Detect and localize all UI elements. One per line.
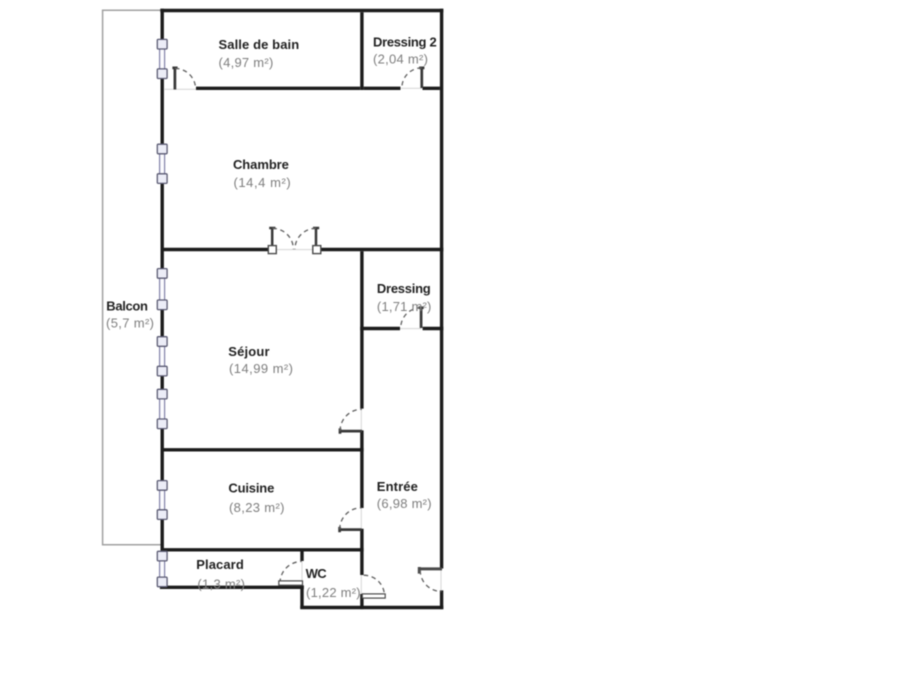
svg-text:WC: WC (306, 566, 328, 581)
svg-text:(1,22 m²): (1,22 m²) (306, 585, 361, 600)
svg-text:Chambre: Chambre (233, 157, 289, 172)
svg-text:Cuisine: Cuisine (228, 481, 274, 496)
svg-text:(5,7 m²): (5,7 m²) (106, 316, 154, 331)
svg-text:Séjour: Séjour (228, 344, 269, 359)
svg-text:(1,3 m²): (1,3 m²) (197, 576, 245, 591)
svg-text:Entrée: Entrée (377, 479, 418, 494)
svg-text:(2,04 m²): (2,04 m²) (373, 52, 428, 67)
svg-text:Dressing: Dressing (377, 281, 431, 296)
svg-text:Placard: Placard (196, 557, 244, 572)
svg-text:(14,99 m²): (14,99 m²) (229, 361, 293, 376)
svg-text:(14,4 m²): (14,4 m²) (234, 175, 291, 190)
svg-text:(1,71 m²): (1,71 m²) (377, 299, 432, 314)
svg-text:Salle de bain: Salle de bain (219, 37, 300, 52)
svg-text:(6,98 m²): (6,98 m²) (377, 496, 432, 511)
svg-text:(4,97 m²): (4,97 m²) (219, 55, 274, 70)
svg-text:(8,23 m²): (8,23 m²) (229, 500, 285, 515)
svg-text:Balcon: Balcon (106, 298, 148, 313)
svg-text:Dressing 2: Dressing 2 (373, 35, 437, 50)
